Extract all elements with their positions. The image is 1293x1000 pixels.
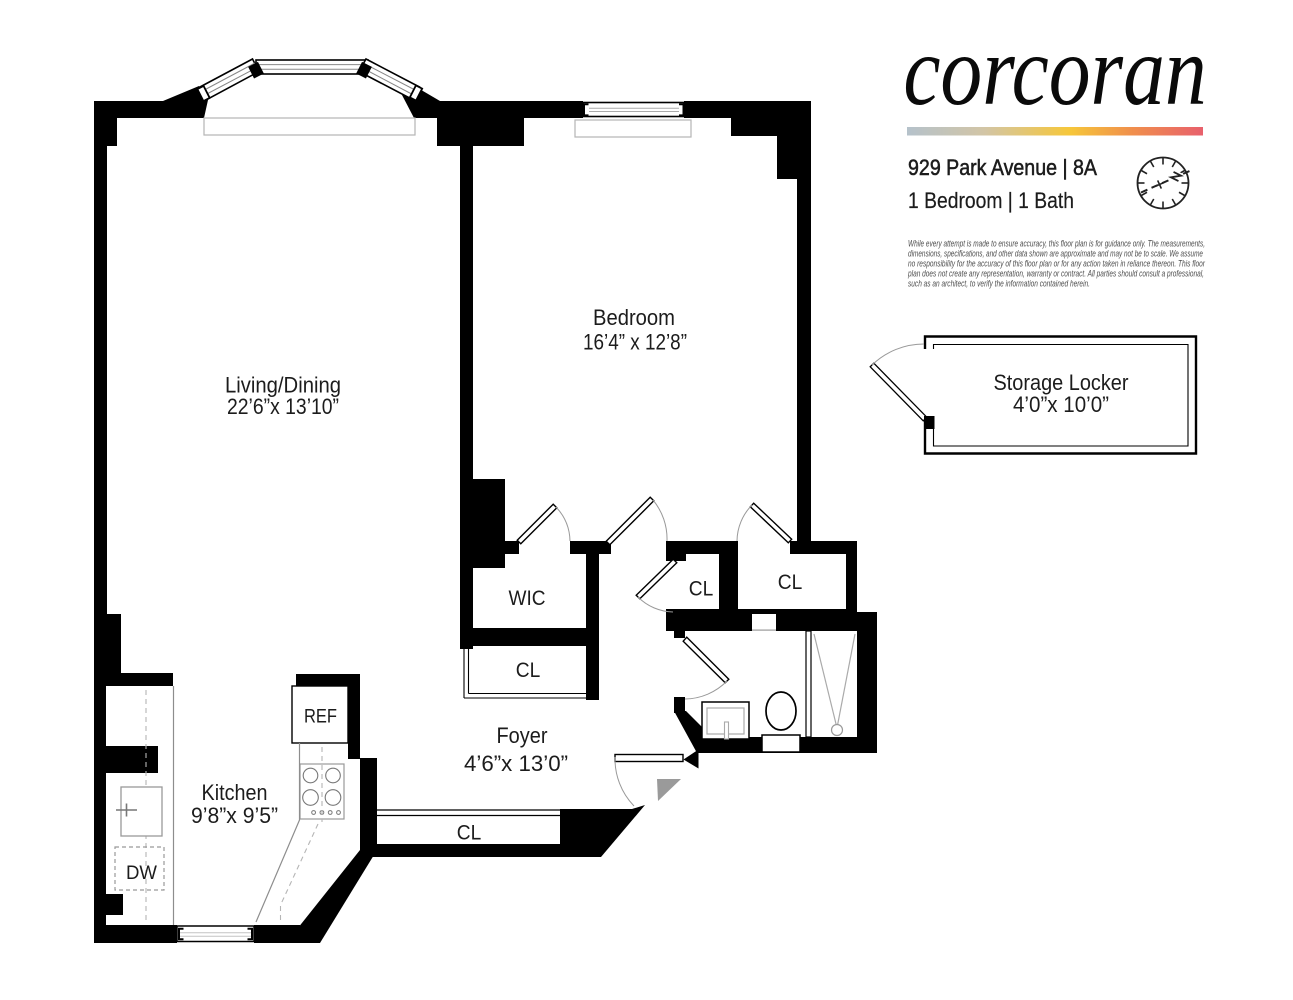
svg-text:CL: CL — [457, 822, 482, 845]
svg-text:REF: REF — [304, 706, 337, 728]
svg-text:4’0”x 10’0”: 4’0”x 10’0” — [1013, 392, 1109, 417]
svg-text:929 Park Avenue | 8A: 929 Park Avenue | 8A — [908, 155, 1097, 180]
svg-text:CL: CL — [516, 659, 541, 682]
svg-text:9’8”x 9’5”: 9’8”x 9’5” — [191, 803, 278, 828]
svg-text:WIC: WIC — [509, 587, 546, 610]
svg-text:dimensions, specifications, an: dimensions, specifications, and other da… — [908, 249, 1203, 259]
svg-text:16’4” x 12’8”: 16’4” x 12’8” — [583, 330, 687, 355]
svg-text:CL: CL — [778, 571, 803, 594]
svg-text:22’6”x 13’10”: 22’6”x 13’10” — [227, 394, 339, 419]
svg-text:4’6”x 13’0”: 4’6”x 13’0” — [464, 751, 568, 776]
svg-text:DW: DW — [126, 862, 158, 884]
svg-text:such as an architect, to verif: such as an architect, to verify the info… — [908, 279, 1090, 289]
svg-text:corcoran: corcoran — [903, 15, 1206, 126]
svg-text:Bedroom: Bedroom — [593, 305, 675, 330]
svg-text:Kitchen: Kitchen — [202, 780, 268, 805]
svg-text:CL: CL — [689, 578, 714, 601]
svg-text:plan does not create any repre: plan does not create any representation,… — [907, 269, 1204, 279]
svg-text:1 Bedroom | 1 Bath: 1 Bedroom | 1 Bath — [908, 188, 1074, 213]
svg-text:Foyer: Foyer — [497, 723, 548, 748]
svg-text:While every attempt is made to: While every attempt is made to ensure ac… — [908, 239, 1205, 249]
svg-text:no responsibility for the accu: no responsibility for the accuracy of th… — [908, 259, 1206, 269]
